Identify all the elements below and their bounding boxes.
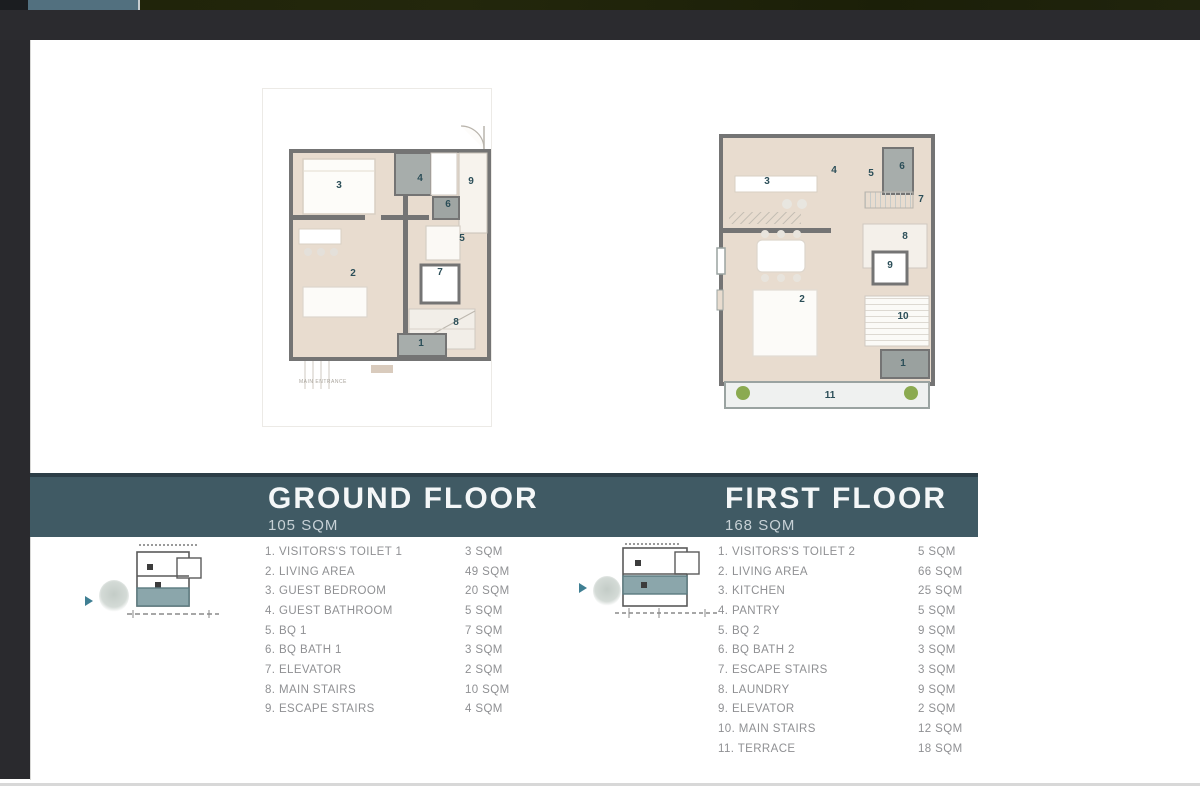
plan-room-number: 8 xyxy=(453,318,459,328)
room-label: 7. ESCAPE STAIRS xyxy=(718,664,918,676)
plan-room-number: 2 xyxy=(799,295,805,305)
plan-room-number: 10 xyxy=(897,312,908,322)
first-plan-drawing xyxy=(715,130,940,415)
room-list-row: 6. BQ BATH 13 SQM xyxy=(265,640,535,660)
room-label: 7. ELEVATOR xyxy=(265,664,465,676)
plan-room-number: 6 xyxy=(445,200,451,210)
room-label: 6. BQ BATH 2 xyxy=(718,644,918,656)
ground-floor-area: 105 SQM xyxy=(268,518,539,533)
floor-title-banner: GROUND FLOOR 105 SQM FIRST FLOOR 168 SQM xyxy=(30,473,978,537)
room-label: 4. GUEST BATHROOM xyxy=(265,605,465,617)
room-list-row: 3. KITCHEN25 SQM xyxy=(718,581,988,601)
ground-floor-plan: 1 2 3 4 5 6 7 8 9 MAIN ENTRANCE xyxy=(262,88,492,427)
background-window-sliver xyxy=(140,0,1200,10)
room-list-row: 4. PANTRY5 SQM xyxy=(718,601,988,621)
room-label: 3. GUEST BEDROOM xyxy=(265,585,465,597)
document-page xyxy=(30,40,1200,780)
viewer-left-rail xyxy=(0,40,30,779)
room-area: 25 SQM xyxy=(918,585,963,597)
first-section-thumbnail xyxy=(575,538,720,622)
room-list-row: 10. MAIN STAIRS12 SQM xyxy=(718,719,988,739)
room-label: 6. BQ BATH 1 xyxy=(265,644,465,656)
room-list-row: 7. ELEVATOR2 SQM xyxy=(265,660,535,680)
room-label: 8. LAUNDRY xyxy=(718,684,918,696)
room-label: 2. LIVING AREA xyxy=(718,566,918,578)
ground-floor-banner-block: GROUND FLOOR 105 SQM xyxy=(268,484,539,533)
ground-plan-drawing xyxy=(263,89,491,426)
room-area: 12 SQM xyxy=(918,723,963,735)
plan-room-number: 4 xyxy=(831,166,837,176)
floor-indicator-arrow-icon xyxy=(85,596,93,606)
ground-room-list: 1. VISITORS'S TOILET 13 SQM 2. LIVING AR… xyxy=(265,542,535,719)
room-label: 11. TERRACE xyxy=(718,743,918,755)
plan-room-number: 9 xyxy=(468,177,474,187)
room-label: 9. ELEVATOR xyxy=(718,703,918,715)
room-list-row: 9. ESCAPE STAIRS4 SQM xyxy=(265,700,535,720)
plan-room-number: 11 xyxy=(825,391,836,401)
room-list-row: 7. ESCAPE STAIRS3 SQM xyxy=(718,660,988,680)
room-list-row: 2. LIVING AREA49 SQM xyxy=(265,562,535,582)
room-list-row: 3. GUEST BEDROOM20 SQM xyxy=(265,581,535,601)
ground-floor-title: GROUND FLOOR xyxy=(268,484,539,514)
first-floor-area: 168 SQM xyxy=(725,518,947,533)
room-area: 7 SQM xyxy=(465,625,503,637)
plan-room-number: 6 xyxy=(899,162,905,172)
first-section-drawing xyxy=(615,538,720,622)
first-floor-plan: 1 2 3 4 5 6 7 8 9 10 11 xyxy=(715,130,940,415)
room-list-row: 2. LIVING AREA66 SQM xyxy=(718,562,988,582)
room-area: 5 SQM xyxy=(918,546,956,558)
active-tab-sliver[interactable] xyxy=(28,0,140,10)
plan-room-number: 7 xyxy=(918,195,924,205)
ground-section-thumbnail xyxy=(85,538,230,622)
plan-room-number: 1 xyxy=(900,359,906,369)
room-label: 3. KITCHEN xyxy=(718,585,918,597)
screen: { "chrome": { "tab_color": "#52707f", "s… xyxy=(0,0,1200,786)
room-label: 10. MAIN STAIRS xyxy=(718,723,918,735)
room-list-row: 4. GUEST BATHROOM5 SQM xyxy=(265,601,535,621)
floor-indicator-arrow-icon xyxy=(579,583,587,593)
room-area: 2 SQM xyxy=(465,664,503,676)
room-area: 20 SQM xyxy=(465,585,510,597)
plan-room-number: 3 xyxy=(764,177,770,187)
room-list-row: 6. BQ BATH 23 SQM xyxy=(718,640,988,660)
room-area: 3 SQM xyxy=(918,644,956,656)
corner-square xyxy=(0,0,28,10)
room-list-row: 11. TERRACE18 SQM xyxy=(718,739,988,759)
ground-section-drawing xyxy=(125,538,225,622)
room-area: 18 SQM xyxy=(918,743,963,755)
main-entrance-label: MAIN ENTRANCE xyxy=(299,379,347,385)
plan-room-number: 3 xyxy=(336,181,342,191)
room-area: 3 SQM xyxy=(918,664,956,676)
room-list-row: 8. LAUNDRY9 SQM xyxy=(718,680,988,700)
room-area: 5 SQM xyxy=(918,605,956,617)
room-area: 10 SQM xyxy=(465,684,510,696)
room-area: 9 SQM xyxy=(918,684,956,696)
room-area: 3 SQM xyxy=(465,644,503,656)
plan-room-number: 9 xyxy=(887,261,893,271)
plan-room-number: 8 xyxy=(902,232,908,242)
first-room-list: 1. VISITORS'S TOILET 25 SQM 2. LIVING AR… xyxy=(718,542,988,759)
room-list-row: 1. VISITORS'S TOILET 25 SQM xyxy=(718,542,988,562)
room-list-row: 5. BQ 29 SQM xyxy=(718,621,988,641)
room-label: 8. MAIN STAIRS xyxy=(265,684,465,696)
plan-room-number: 2 xyxy=(350,269,356,279)
plan-room-number: 4 xyxy=(417,174,423,184)
room-area: 2 SQM xyxy=(918,703,956,715)
plan-room-number: 1 xyxy=(418,339,424,349)
plan-room-number: 7 xyxy=(437,268,443,278)
room-label: 1. VISITORS'S TOILET 1 xyxy=(265,546,465,558)
first-floor-title: FIRST FLOOR xyxy=(725,484,947,514)
room-label: 5. BQ 1 xyxy=(265,625,465,637)
plan-room-number: 5 xyxy=(459,234,465,244)
room-list-row: 9. ELEVATOR2 SQM xyxy=(718,700,988,720)
room-area: 9 SQM xyxy=(918,625,956,637)
room-list-row: 8. MAIN STAIRS10 SQM xyxy=(265,680,535,700)
room-area: 66 SQM xyxy=(918,566,963,578)
plan-room-number: 5 xyxy=(868,169,874,179)
room-area: 49 SQM xyxy=(465,566,510,578)
room-label: 2. LIVING AREA xyxy=(265,566,465,578)
room-label: 5. BQ 2 xyxy=(718,625,918,637)
room-area: 5 SQM xyxy=(465,605,503,617)
room-list-row: 5. BQ 17 SQM xyxy=(265,621,535,641)
room-label: 9. ESCAPE STAIRS xyxy=(265,703,465,715)
room-list-row: 1. VISITORS'S TOILET 13 SQM xyxy=(265,542,535,562)
first-floor-banner-block: FIRST FLOOR 168 SQM xyxy=(725,484,947,533)
room-area: 3 SQM xyxy=(465,546,503,558)
room-label: 4. PANTRY xyxy=(718,605,918,617)
top-edge-strip xyxy=(0,0,1200,10)
room-label: 1. VISITORS'S TOILET 2 xyxy=(718,546,918,558)
viewer-toolbar xyxy=(0,10,1200,40)
room-area: 4 SQM xyxy=(465,703,503,715)
